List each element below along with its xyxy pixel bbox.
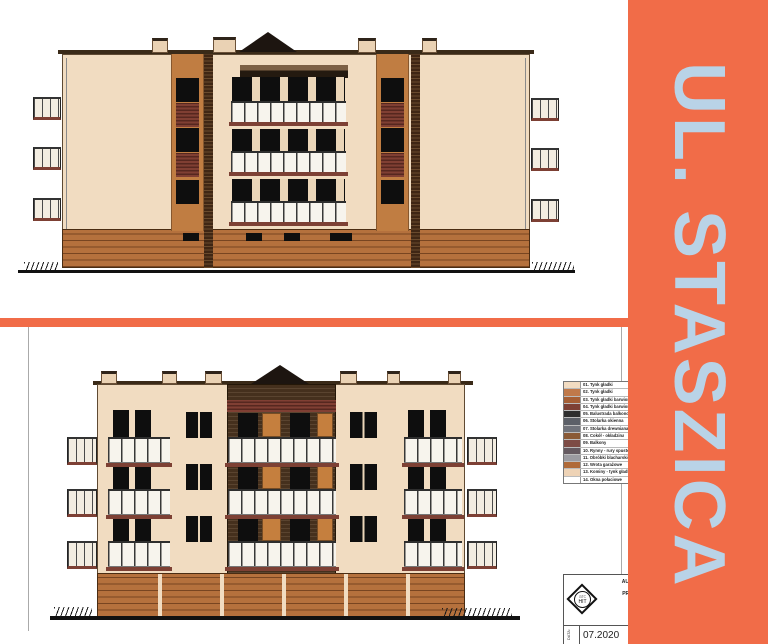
timber-panel	[317, 517, 333, 541]
side-balcony	[33, 198, 61, 221]
grass-hatch	[442, 608, 512, 616]
window	[176, 128, 199, 152]
louver-spandrel	[176, 153, 199, 177]
legend-swatch	[564, 404, 581, 410]
legend-label: 11. Obróbki blacharskie	[581, 455, 630, 461]
legend-label: 08. Cokół - okładzina	[581, 433, 624, 439]
chimney	[358, 38, 376, 53]
chimney	[162, 371, 177, 384]
side-balcony	[67, 437, 97, 465]
stair-window	[350, 464, 377, 490]
garage-door-seam	[406, 574, 410, 617]
window-band	[232, 179, 345, 201]
side-balcony	[467, 541, 497, 569]
balcony-railing	[231, 201, 346, 223]
legend-swatch	[564, 389, 581, 395]
legend-swatch	[564, 426, 581, 432]
louver-spandrel	[176, 103, 199, 127]
timber-panel	[317, 465, 333, 489]
legend-swatch	[564, 448, 581, 454]
balcony-railing	[228, 541, 336, 567]
window	[238, 517, 258, 541]
legend-swatch	[564, 455, 581, 461]
balcony-slab	[229, 122, 348, 126]
legend-swatch	[564, 440, 581, 446]
brick-chimney-strip	[411, 54, 420, 268]
timber-panel	[317, 413, 333, 437]
balcony-railing	[108, 541, 170, 567]
legend-label: 05. Balustrada balkonowa	[581, 411, 634, 417]
window	[381, 78, 404, 102]
title-block-divider	[564, 625, 638, 626]
legend-swatch	[564, 411, 581, 417]
balcony-slab	[229, 222, 348, 226]
garage-door-seam	[282, 574, 286, 617]
legend-label: 12. Wrota garażowe	[581, 462, 622, 468]
logo-circle-icon: arc HIT	[574, 591, 591, 608]
legend-label: 09. Balkony	[581, 440, 606, 446]
window-band	[232, 77, 345, 101]
window	[290, 517, 310, 541]
balcony-slab	[402, 515, 464, 519]
chimney	[213, 37, 236, 53]
window	[381, 128, 404, 152]
title-block: arc HIT AUTORSKA UL PRACOWNI TEL.: DATA:…	[563, 574, 638, 644]
basement-vent	[330, 233, 352, 241]
balcony-slab	[106, 567, 172, 571]
side-balcony	[67, 489, 97, 517]
window	[290, 465, 310, 489]
date-label: DATA:	[566, 629, 571, 640]
legend-label: 14. Okna połaciowe	[581, 477, 622, 483]
balcony-slab	[402, 463, 464, 467]
legend-label: 04. Tynk gładki barwiony	[581, 404, 632, 410]
louver-band	[227, 400, 336, 412]
chimney	[448, 371, 461, 384]
basement-vent	[284, 233, 300, 241]
window	[290, 413, 310, 437]
basement-vent	[246, 233, 262, 241]
stair-window	[186, 516, 212, 542]
stair-window	[186, 412, 212, 438]
balcony-railing	[228, 437, 336, 463]
window	[408, 410, 424, 437]
legend-swatch	[564, 418, 581, 424]
legend-label: 01. Tynk gładki	[581, 382, 613, 388]
legend-label: 06. Stolarka okienna	[581, 418, 624, 424]
firm-logo: arc HIT	[568, 579, 598, 621]
balcony-slab	[402, 567, 464, 571]
louver-spandrel	[381, 103, 404, 127]
balcony-railing	[108, 489, 170, 515]
timber-panel	[262, 465, 281, 489]
window	[176, 180, 199, 204]
legend-swatch	[564, 433, 581, 439]
balcony-railing	[228, 489, 336, 515]
legend-swatch	[564, 462, 581, 468]
top-elevation	[0, 0, 628, 318]
balcony-railing	[404, 437, 462, 463]
window	[176, 78, 199, 102]
legend-swatch	[564, 469, 581, 475]
balcony-slab	[106, 463, 172, 467]
balcony-slab	[225, 515, 339, 519]
roof-skylight-icon	[239, 32, 297, 52]
legend-label: 03. Tynk gładki barwiony	[581, 397, 632, 403]
grass-hatch	[24, 262, 58, 270]
chimney	[205, 371, 222, 384]
window	[238, 413, 258, 437]
sheet-frame-line	[28, 327, 29, 631]
side-balcony	[467, 489, 497, 517]
balcony-slab	[106, 515, 172, 519]
legend-label: 10. Rynny - rury spustowe	[581, 448, 635, 454]
window	[238, 465, 258, 489]
window	[135, 410, 151, 437]
chimney	[422, 38, 437, 53]
chimney	[101, 371, 117, 384]
garage-door-seam	[158, 574, 162, 617]
stair-window	[350, 412, 377, 438]
side-balcony	[467, 437, 497, 465]
basement-vent	[183, 233, 199, 241]
timber-panel	[262, 413, 281, 437]
balcony-slab	[225, 463, 339, 467]
balcony-railing	[404, 489, 462, 515]
side-balcony	[531, 199, 559, 222]
brick-chimney-strip	[204, 54, 213, 268]
window-band	[232, 129, 345, 151]
drawing-sheet: 01. Tynk gładki 02. Tynk gładki 03. Tynk…	[0, 0, 768, 644]
garage-door-seam	[220, 574, 224, 617]
louver-spandrel	[381, 153, 404, 177]
legend-label: 02. Tynk gładki	[581, 389, 613, 395]
logo-text: HIT	[575, 600, 590, 605]
legend-swatch	[564, 477, 581, 483]
stair-window	[350, 516, 377, 542]
date-value: 07.2020	[583, 630, 619, 641]
balcony-railing	[231, 151, 346, 173]
window	[381, 180, 404, 204]
balcony-railing	[108, 437, 170, 463]
chimney	[340, 371, 357, 384]
downpipe	[66, 58, 67, 229]
side-balcony	[531, 98, 559, 121]
balcony-slab	[225, 567, 339, 571]
grass-hatch	[54, 607, 92, 616]
balcony-railing	[404, 541, 462, 567]
legend-label: 13. Kominy - tynk gładki	[581, 469, 631, 475]
ground-line	[18, 270, 575, 273]
window	[430, 410, 446, 437]
stair-window	[186, 464, 212, 490]
street-banner: UL. STASZICA	[628, 0, 768, 644]
side-balcony	[67, 541, 97, 569]
grass-hatch	[532, 262, 574, 270]
side-balcony	[33, 147, 61, 170]
roof-skylight-icon	[251, 365, 309, 384]
chimney	[387, 371, 400, 384]
legend-swatch	[564, 382, 581, 388]
legend-label: 07. Stolarka drewniana	[581, 426, 628, 432]
balcony-railing	[231, 101, 346, 123]
downpipe	[525, 58, 526, 229]
ground-line	[50, 616, 520, 620]
title-block-divider	[579, 625, 580, 644]
divider-bar	[0, 318, 628, 327]
garage-door-seam	[344, 574, 348, 617]
bottom-elevation	[0, 318, 628, 644]
street-banner-title: UL. STASZICA	[660, 0, 736, 644]
side-balcony	[531, 148, 559, 171]
balcony-slab	[229, 172, 348, 176]
side-balcony	[33, 97, 61, 120]
chimney	[152, 38, 168, 53]
window	[113, 410, 129, 437]
timber-panel	[262, 517, 281, 541]
legend-swatch	[564, 397, 581, 403]
